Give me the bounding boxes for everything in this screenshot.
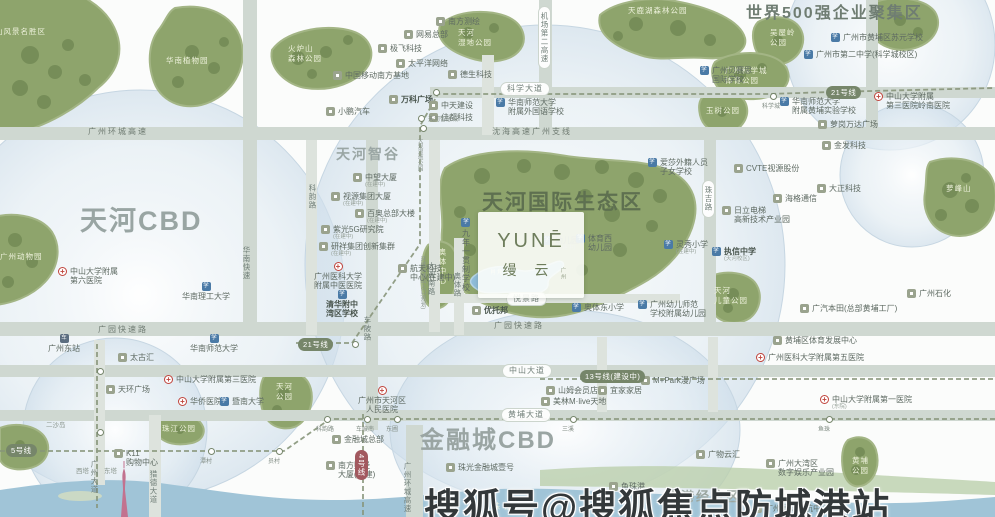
school-icon: [496, 98, 505, 107]
road-label: 沈海高速广州支线: [492, 127, 572, 137]
poi: 中国移动南方基地: [333, 71, 409, 80]
poi: 华南理工大学: [182, 282, 230, 301]
poi-label: 广州市黄埔区苏元学校: [843, 33, 923, 42]
poi: 南方测绘: [436, 17, 480, 26]
poi-label: 天环广场: [118, 385, 150, 394]
poi: 九年一贯制学校: [461, 218, 470, 292]
poi-label: 宜家家居: [610, 386, 642, 395]
poi-label: 广州医科大学 附属中医医院: [314, 272, 362, 291]
poi: 中望大厦(在建中): [353, 173, 397, 189]
road-label: 二沙岛: [46, 422, 66, 430]
building-icon: [448, 70, 457, 79]
road-label: 珠吉路: [702, 180, 715, 218]
school-icon: [572, 303, 581, 312]
building-icon: [598, 386, 607, 395]
poi: 广汽本田(总部黄埔工厂): [800, 304, 897, 313]
poi: 中山大学附属 第六医院: [58, 267, 118, 286]
school-icon: [220, 397, 229, 406]
metro-station-label: 天河智慧城: [428, 114, 458, 123]
metro-station: [826, 416, 833, 423]
school-icon: [804, 50, 813, 59]
hospital-icon: [334, 262, 343, 271]
school-icon: [638, 300, 647, 309]
road-label: 广州大道: [90, 460, 99, 494]
poi-label: 黄埔区体育发展中心: [785, 336, 857, 345]
map-canvas: 世界500强企业聚集区天河国际生态区天河CBD天河智谷金融城CBD临港经济区白云…: [0, 0, 995, 517]
road-label: 猎德大道: [149, 470, 158, 504]
poi-label: 太古汇: [130, 353, 154, 362]
building-icon: [907, 289, 916, 298]
poi-label: 中望大厦: [365, 173, 397, 182]
building-icon: [773, 194, 782, 203]
area-title: 天河智谷: [336, 146, 400, 163]
metro-station: [433, 89, 440, 96]
road-label: 东塔: [104, 468, 117, 476]
poi-sublabel: (在建中): [365, 182, 397, 188]
poi: 小鹏汽车: [326, 107, 370, 116]
poi-label: 华南师范大学: [190, 344, 238, 353]
poi-label: 广汽本田(总部黄埔工厂): [812, 304, 897, 313]
poi-label: 华南师范大学 附属外国语学校: [508, 98, 564, 117]
building-icon: [114, 449, 123, 458]
poi-label: M+Park漫广场: [653, 376, 705, 385]
school-icon: [700, 66, 709, 75]
hospital-icon: [820, 395, 829, 404]
building-icon: [398, 264, 407, 273]
poi: 华南师范大学: [190, 334, 238, 353]
poi: 航天科技 中心(在建中): [398, 264, 455, 283]
school-icon: [210, 334, 219, 343]
metro-station: [324, 416, 331, 423]
poi-label: 广州市天河区 人民医院: [358, 396, 406, 415]
poi: 萝岗万达广场: [818, 120, 878, 129]
poi-label: 爱莎外籍人员 子女学校: [660, 158, 708, 177]
poi-label: 极飞科技: [390, 44, 422, 53]
poi: 灵秀小学(在建中): [664, 240, 708, 256]
poi-label: 清华附中 湾区学校: [326, 300, 358, 319]
school-icon: [712, 247, 721, 256]
poi-label: 体育西 幼儿园: [588, 234, 612, 253]
building-icon: [546, 386, 555, 395]
poi: 宜家家居: [598, 386, 642, 395]
poi-label: 小鹏汽车: [338, 107, 370, 116]
poi-label: 研祥集团创新集群: [331, 242, 395, 251]
park-label: 黄埔 公园: [852, 456, 869, 476]
building-icon: [773, 336, 782, 345]
park-label: 白云山风景名胜区: [0, 27, 46, 37]
poi: 百奥总部大楼(在建中): [355, 209, 415, 225]
poi-sublabel: (在建中): [367, 218, 415, 224]
building-icon: [333, 71, 342, 80]
school-icon: [338, 290, 347, 299]
poi: 美林M·live天地: [541, 397, 606, 406]
building-icon: [722, 206, 731, 215]
metro-station-label: 科学城: [762, 101, 780, 110]
building-icon: [321, 225, 330, 234]
poi: 中山大学附属第一医院(东院): [820, 395, 912, 411]
poi: 中山大学附属 第三医院岭南医院: [874, 92, 950, 111]
park-label: 萝峰山: [946, 184, 972, 194]
poi: 金发科技: [822, 141, 866, 150]
poi: 海格通信: [773, 194, 817, 203]
poi: 大正科技: [817, 184, 861, 193]
park-label: 天河 儿童公园: [714, 286, 748, 306]
metro-station-label: 车陂南: [356, 424, 374, 433]
hospital-icon: [756, 353, 765, 362]
poi-label: 海格通信: [785, 194, 817, 203]
watermark: 搜狐号@搜狐焦点防城港站: [424, 477, 891, 517]
poi-label: 执信中学: [724, 247, 756, 256]
project-name-cn: 缦 云: [503, 260, 556, 280]
building-icon: [696, 450, 705, 459]
road-label: 大观湿地公园: [416, 138, 423, 171]
park-label: 广州动物园: [0, 252, 43, 262]
poi-label: 太平洋网络: [408, 59, 448, 68]
poi-label: 中山大学附属第三医院: [176, 375, 256, 384]
building-icon: [355, 209, 364, 218]
building-icon: [106, 385, 115, 394]
poi-label: 德生科技: [460, 70, 492, 79]
building-icon: [326, 107, 335, 116]
poi-label: 华侨医院: [190, 397, 222, 406]
metro-line-badge: 21号线: [826, 86, 861, 99]
project-logo: YUNĒ 缦 云 广州: [478, 212, 584, 298]
school-icon: [831, 33, 840, 42]
area-title: 金融城CBD: [420, 427, 556, 456]
hospital-icon: [178, 397, 187, 406]
poi-label: 航天科技 中心(在建中): [410, 264, 455, 283]
road-label: 广州环城高速: [403, 462, 412, 513]
poi: 万科广场: [389, 95, 433, 104]
poi: 紫光5G研究院(在建中): [321, 225, 384, 241]
building-icon: [436, 17, 445, 26]
road-label: 科学大道: [500, 82, 550, 96]
park-label: 吴屋岭 公园: [770, 28, 796, 48]
school-icon: [202, 282, 211, 291]
area-title: 天河CBD: [80, 205, 203, 237]
project-city: 广州: [558, 267, 566, 280]
poi-label: 广州贝赛思 国际学校: [712, 66, 752, 85]
poi-label: 中山大学附属第一医院: [832, 395, 912, 404]
park-label: 珠江公园: [162, 424, 196, 434]
building-icon: [378, 44, 387, 53]
metro-station: [364, 416, 371, 423]
park-label: 天鹿湖森林公园: [628, 6, 688, 16]
poi: 广物云汇: [696, 450, 740, 459]
metro-line-badge: 5号线: [6, 444, 37, 457]
building-icon: [734, 164, 743, 173]
building-icon: [766, 459, 775, 468]
project-name-en: YUNĒ: [497, 230, 565, 253]
poi-sublabel: (东院): [832, 404, 912, 410]
poi: 奥体东小学: [572, 303, 624, 312]
metro-station-label: 科韵路: [316, 424, 334, 433]
poi-label: 萝岗万达广场: [830, 120, 878, 129]
poi-sublabel: (在建中): [333, 234, 384, 240]
road-label: 车陂路: [363, 316, 372, 342]
poi-label: K11 购物中心: [126, 449, 158, 468]
building-icon: [332, 435, 341, 444]
poi-label: 金融城总部: [344, 435, 384, 444]
poi-label: 灵秀小学: [676, 240, 708, 249]
poi: 广州贝赛思 国际学校: [700, 66, 752, 85]
poi: 广州市天河区 人民医院: [358, 386, 406, 415]
poi-label: 南方测绘: [448, 17, 480, 26]
poi: 网易总部: [404, 30, 448, 39]
poi: 广州石化: [907, 289, 951, 298]
area-title: 世界500强企业聚集区: [746, 4, 923, 23]
hospital-icon: [874, 92, 883, 101]
poi: 广州市第二中学(科学城校区): [804, 50, 917, 59]
poi: 执信中学(天河校区): [712, 247, 756, 263]
poi: K11 购物中心: [114, 449, 158, 468]
metro-station: [420, 125, 427, 132]
poi: 广州大湾区 数字娱乐产业园: [766, 459, 834, 478]
metro-line-badge: 4号线: [355, 450, 368, 480]
road-label: 中山大道: [502, 364, 552, 378]
poi: 广州医科大学附属第五医院: [756, 353, 864, 362]
building-icon: [404, 30, 413, 39]
school-icon: [780, 97, 789, 106]
building-icon: [331, 192, 340, 201]
poi-label: 广州东站: [48, 344, 80, 353]
school-icon: [664, 240, 673, 249]
poi-label: 九年一贯制学校: [461, 229, 470, 292]
poi: 中山大学附属第三医院: [164, 375, 256, 384]
metro-station: [770, 93, 777, 100]
poi: 广州幼儿师范 学校附属幼儿园: [638, 300, 706, 319]
poi: 广州市黄埔区苏元学校: [831, 33, 923, 42]
poi: 研祥集团创新集群(在建中): [319, 242, 395, 258]
poi-label: 网易总部: [416, 30, 448, 39]
metro-station: [208, 448, 215, 455]
poi: 珠光金融城壹号: [446, 463, 514, 472]
metro-station-label: 潭村: [200, 456, 212, 465]
building-icon: [389, 95, 398, 104]
hospital-icon: [164, 375, 173, 384]
metro-station: [276, 448, 283, 455]
building-icon: [118, 353, 127, 362]
road-label: 广州环城高速: [88, 127, 148, 137]
road-label: 广园快速路: [494, 321, 544, 331]
poi: 爱莎外籍人员 子女学校: [648, 158, 708, 177]
building-icon: [446, 463, 455, 472]
poi: 暨南大学: [220, 397, 264, 406]
poi: 清华附中 湾区学校: [326, 290, 358, 319]
poi-label: 百奥总部大楼: [367, 209, 415, 218]
poi-label: CVTE视源股份: [746, 164, 799, 173]
poi-label: 视源集团大厦: [343, 192, 391, 201]
poi: 日立电梯 高新技术产业园: [722, 206, 790, 225]
poi-label: 珠光金融城壹号: [458, 463, 514, 472]
poi-label: 广州市第二中学(科学城校区): [816, 50, 917, 59]
poi-sublabel: (在建中): [331, 251, 395, 257]
poi: 极飞科技: [378, 44, 422, 53]
park-label: 华南植物园: [166, 56, 209, 66]
road-label: 西塔: [76, 468, 89, 476]
building-icon: [541, 397, 550, 406]
park-label: 火炉山 森林公园: [288, 44, 322, 64]
poi-label: 中山大学附属 第六医院: [70, 267, 118, 286]
poi-label: 金发科技: [834, 141, 866, 150]
metro-station: [97, 368, 104, 375]
metro-line-badge: 13号线(建设中): [580, 370, 645, 383]
building-icon: [822, 141, 831, 150]
poi-label: 大正科技: [829, 184, 861, 193]
park-label: 天河 湿地公园: [458, 28, 492, 48]
hospital-icon: [378, 386, 387, 395]
poi: 金融城总部: [332, 435, 384, 444]
poi-label: 中山大学附属 第三医院岭南医院: [886, 92, 950, 111]
school-icon: [461, 218, 470, 227]
metro-station: [97, 429, 104, 436]
poi: 优托邦: [472, 306, 508, 315]
building-icon: [800, 304, 809, 313]
poi: M+Park漫广场: [641, 376, 705, 385]
metro-station-label: 鱼珠: [818, 424, 830, 433]
building-icon: [326, 461, 335, 470]
metro-station: [418, 115, 425, 122]
poi-label: 日立电梯 高新技术产业园: [734, 206, 790, 225]
park-label: 玉树公园: [706, 106, 740, 116]
poi: 广州东站: [48, 334, 80, 353]
poi-label: 华南理工大学: [182, 292, 230, 301]
poi-label: 美林M·live天地: [553, 397, 606, 406]
poi-label: 优托邦: [484, 306, 508, 315]
poi-label: 中天建设: [441, 101, 473, 110]
building-icon: [818, 120, 827, 129]
poi-label: 广州石化: [919, 289, 951, 298]
metro-station: [352, 341, 359, 348]
poi: 山姆会员店: [546, 386, 598, 395]
park-label: 天河 公园: [276, 382, 293, 402]
poi: 黄埔区体育发展中心: [773, 336, 857, 345]
road-label: 黄埔大道: [501, 408, 551, 422]
poi-label: 奥体东小学: [584, 303, 624, 312]
poi-label: 广州大湾区 数字娱乐产业园: [778, 459, 834, 478]
poi-label: 紫光5G研究院: [333, 225, 384, 234]
poi-label: 广州幼儿师范 学校附属幼儿园: [650, 300, 706, 319]
poi: 视源集团大厦(在建中): [331, 192, 391, 208]
poi: 中天建设: [429, 101, 473, 110]
poi: 天环广场: [106, 385, 150, 394]
metro-line-badge: 21号线: [298, 338, 333, 351]
poi-sublabel: (在建中): [343, 201, 391, 207]
building-icon: [319, 242, 328, 251]
building-icon: [472, 306, 481, 315]
poi-label: 中国移动南方基地: [345, 71, 409, 80]
metro-station: [394, 416, 401, 423]
poi: 华南师范大学 附属外国语学校: [496, 98, 564, 117]
metro-station-label: 员村: [268, 456, 280, 465]
poi-label: 山姆会员店: [558, 386, 598, 395]
poi: 太古汇: [118, 353, 154, 362]
poi: 华侨医院: [178, 397, 222, 406]
road-label: 华南快速: [242, 246, 251, 280]
poi-label: 华南师范大学 附属黄埔实验学校: [792, 97, 856, 116]
poi: CVTE视源股份: [734, 164, 799, 173]
poi-label: 广物云汇: [708, 450, 740, 459]
poi-sublabel: (在建中): [676, 249, 708, 255]
metro-station-label: 东圃: [386, 424, 398, 433]
road-label: 科韵路: [308, 184, 317, 210]
poi-sublabel: (天河校区): [724, 256, 756, 262]
poi: 华南师范大学 附属黄埔实验学校: [780, 97, 856, 116]
poi: 德生科技: [448, 70, 492, 79]
poi-label: 广州医科大学附属第五医院: [768, 353, 864, 362]
road-label: 广园快速路: [98, 325, 148, 335]
poi: 太平洋网络: [396, 59, 448, 68]
building-icon: [429, 101, 438, 110]
metro-station-label: 三溪: [562, 424, 574, 433]
poi-label: 暨南大学: [232, 397, 264, 406]
poi: 广州医科大学 附属中医医院: [314, 262, 362, 291]
school-icon: [648, 158, 657, 167]
building-icon: [817, 184, 826, 193]
building-icon: [353, 173, 362, 182]
metro-station: [570, 416, 577, 423]
building-icon: [396, 59, 405, 68]
hospital-icon: [58, 267, 67, 276]
road-label: 机场第二高速: [538, 6, 551, 69]
train-station-icon: [60, 334, 69, 343]
